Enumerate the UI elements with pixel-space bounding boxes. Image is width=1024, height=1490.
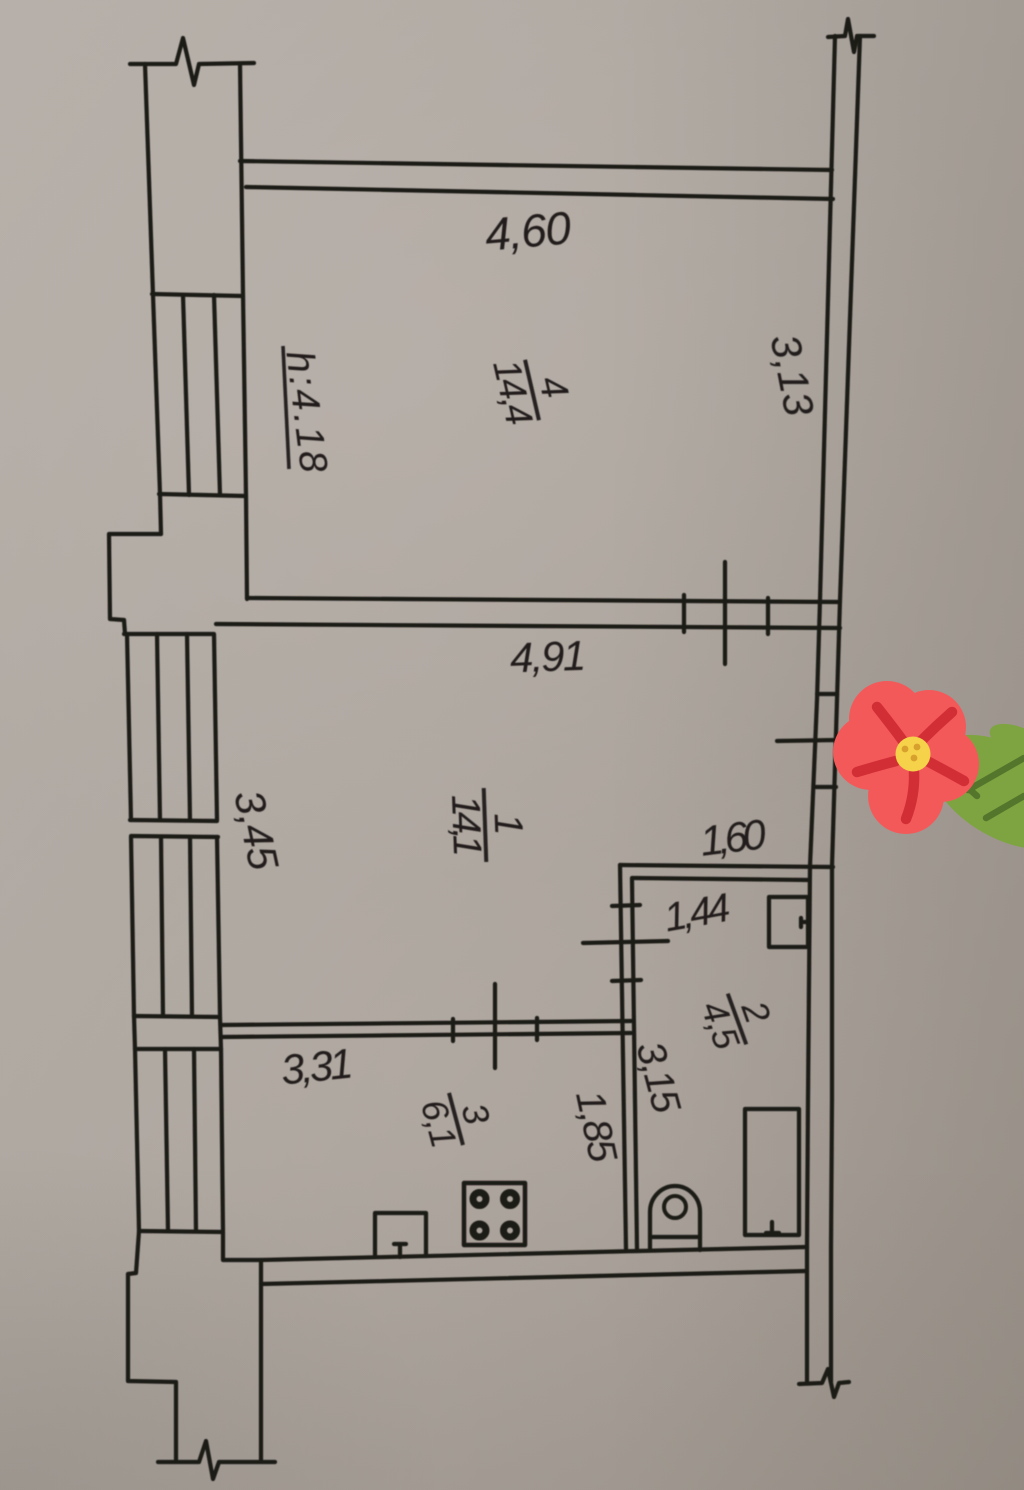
svg-text:1: 1 bbox=[486, 812, 531, 836]
svg-text:4,91: 4,91 bbox=[509, 632, 587, 682]
svg-text:4,60: 4,60 bbox=[483, 201, 574, 260]
svg-text:1,60: 1,60 bbox=[697, 810, 769, 865]
svg-text:14,1: 14,1 bbox=[443, 794, 489, 857]
svg-text:3,31: 3,31 bbox=[279, 1039, 356, 1093]
